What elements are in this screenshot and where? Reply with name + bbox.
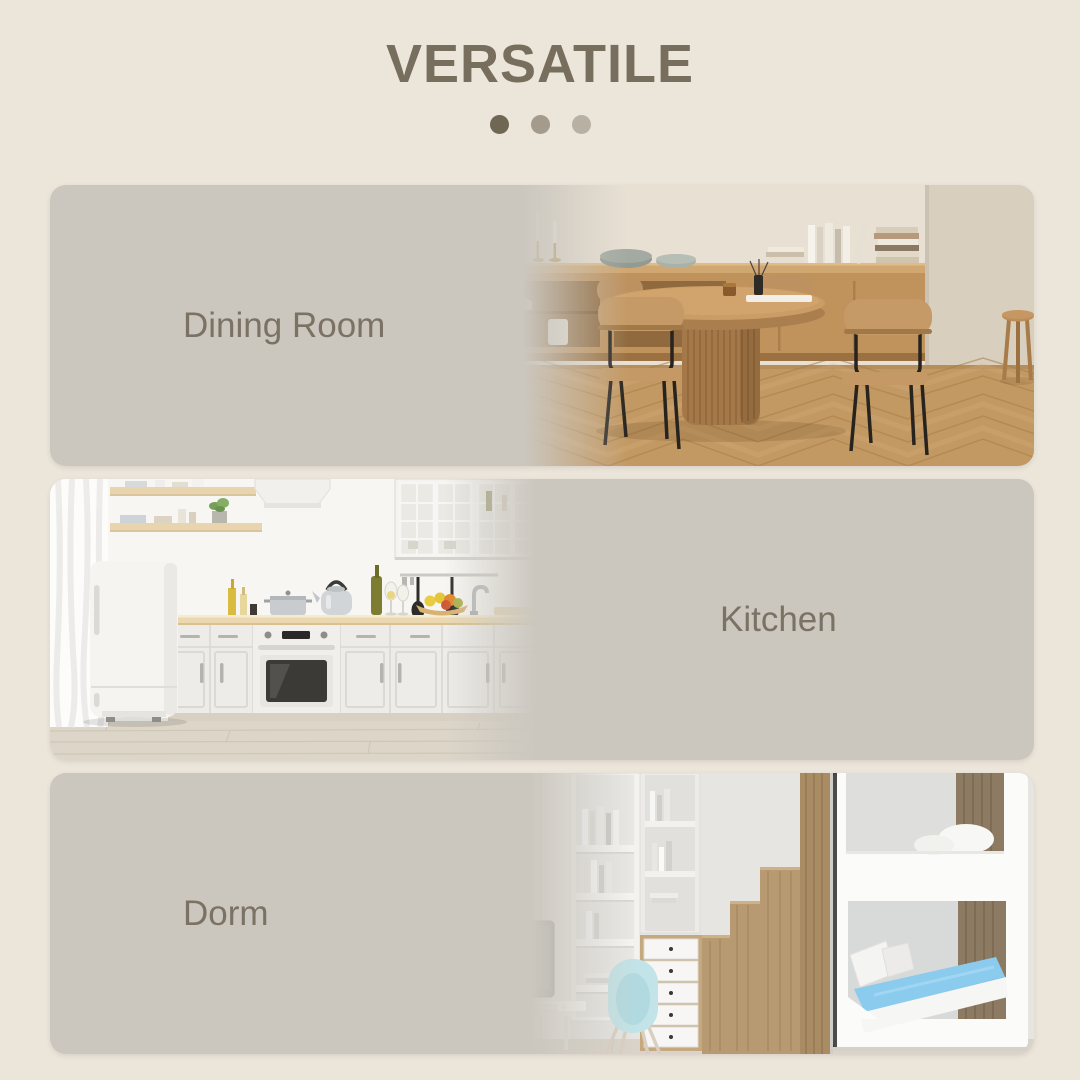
panel-kitchen: Kitchen [50, 479, 1034, 760]
infographic-page: VERSATILE [0, 0, 1080, 1080]
panel-dining-room: Dining Room [50, 185, 1034, 466]
oven [253, 625, 340, 713]
books-row-1 [582, 807, 619, 845]
bookshelf-tall [640, 773, 700, 933]
carousel-dots [0, 115, 1080, 134]
panel-label-kitchen: Kitchen [720, 600, 837, 640]
kitchen-photo [50, 479, 550, 760]
panel-label-dining-room: Dining Room [183, 306, 385, 346]
top-bunk [846, 773, 1004, 855]
carousel-dot [531, 115, 550, 134]
panel-label-dorm: Dorm [183, 894, 269, 934]
carousel-dot-active [490, 115, 509, 134]
range-hood [255, 479, 330, 508]
cutting-board [494, 607, 536, 615]
page-title: VERSATILE [0, 33, 1080, 95]
lower-cabinets [168, 625, 550, 721]
bottom-bunk [848, 901, 1008, 1033]
dining-room-photo [478, 185, 1034, 466]
panel-dorm: Dorm [50, 773, 1034, 1054]
upper-cabinets [395, 479, 550, 560]
books-row-3 [586, 909, 607, 939]
carousel-dot [572, 115, 591, 134]
fridge [83, 561, 187, 727]
bunk-bed [833, 773, 1028, 1051]
dorm-photo [494, 773, 1034, 1054]
